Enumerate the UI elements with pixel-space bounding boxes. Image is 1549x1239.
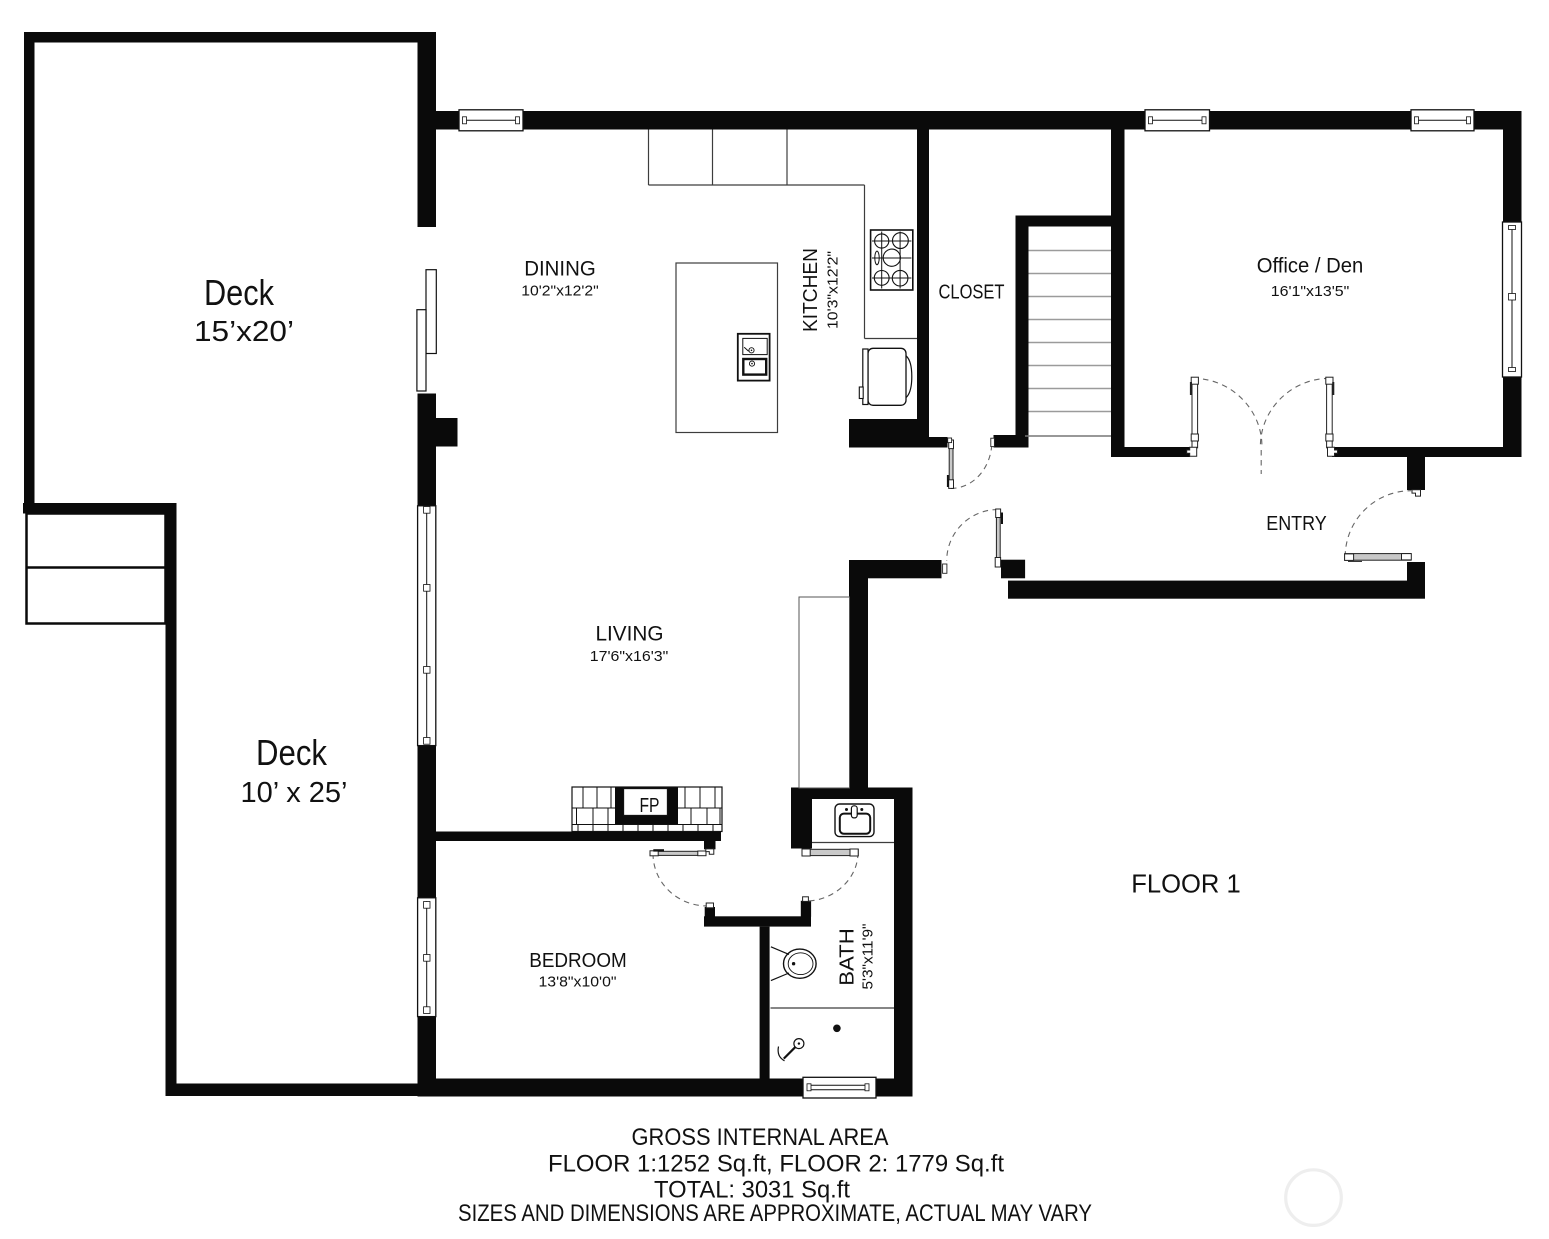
- svg-text:DINING: DINING: [524, 257, 596, 281]
- svg-text:SIZES AND DIMENSIONS ARE APPRO: SIZES AND DIMENSIONS ARE APPROXIMATE, AC…: [458, 1200, 1092, 1227]
- svg-text:15’x20’: 15’x20’: [194, 316, 294, 348]
- svg-text:Office / Den: Office / Den: [1257, 254, 1364, 278]
- svg-text:16'1"x13'5": 16'1"x13'5": [1271, 283, 1350, 300]
- svg-text:GROSS INTERNAL AREA: GROSS INTERNAL AREA: [632, 1124, 889, 1151]
- svg-text:10'3"x12'2": 10'3"x12'2": [825, 251, 842, 329]
- svg-text:13'8"x10'0": 13'8"x10'0": [539, 974, 617, 991]
- svg-text:17'6"x16'3": 17'6"x16'3": [590, 648, 669, 665]
- svg-text:FLOOR 1: FLOOR 1: [1131, 869, 1241, 899]
- svg-text:5'3"x11'9": 5'3"x11'9": [860, 924, 877, 990]
- svg-text:LIVING: LIVING: [596, 621, 664, 645]
- svg-text:BATH: BATH: [836, 928, 859, 986]
- svg-text:CLOSET: CLOSET: [939, 282, 1005, 304]
- svg-text:Deck: Deck: [204, 272, 275, 313]
- svg-text:10'2"x12'2": 10'2"x12'2": [521, 283, 599, 300]
- svg-text:BEDROOM: BEDROOM: [529, 949, 627, 972]
- svg-text:FP: FP: [640, 795, 660, 817]
- svg-text:Deck: Deck: [256, 732, 328, 773]
- svg-text:ENTRY: ENTRY: [1266, 512, 1327, 535]
- svg-text:FLOOR 1:1252 Sq.ft, FLOOR 2: 1: FLOOR 1:1252 Sq.ft, FLOOR 2: 1779 Sq.ft: [548, 1151, 1004, 1178]
- svg-text:10’ x 25’: 10’ x 25’: [241, 777, 348, 809]
- svg-text:KITCHEN: KITCHEN: [799, 248, 822, 332]
